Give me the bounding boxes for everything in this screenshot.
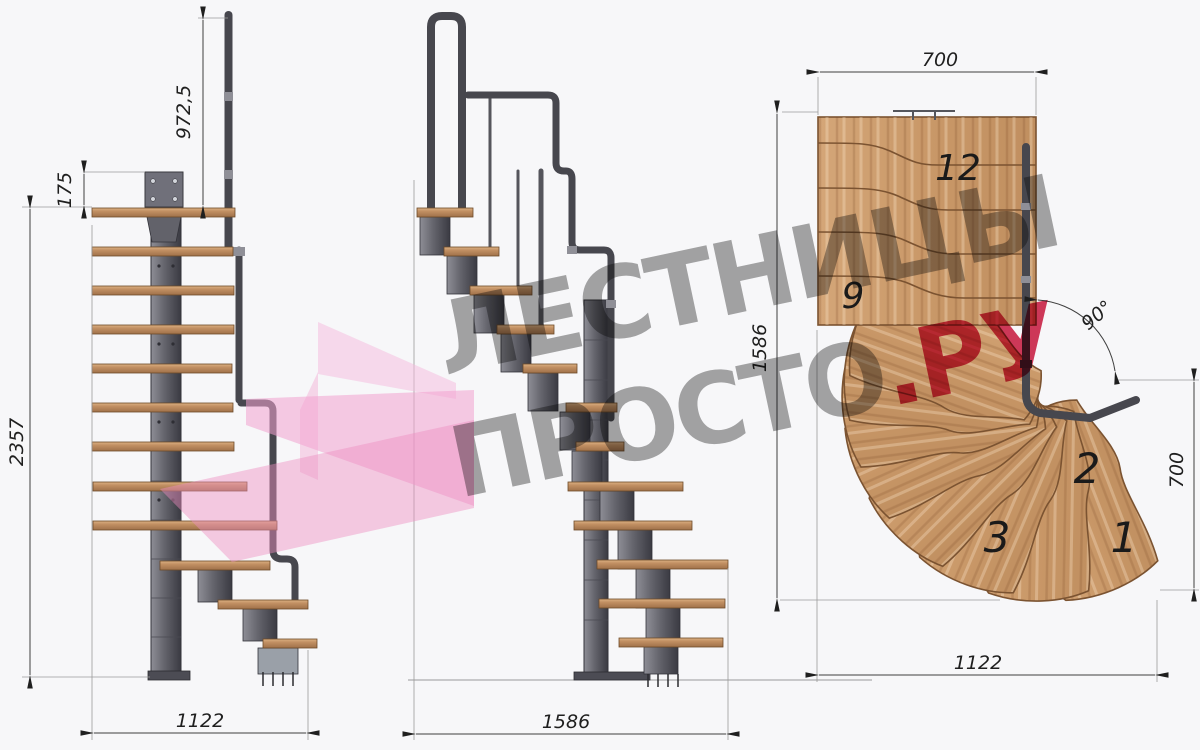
dim-label-side-width: 1586 [542,711,590,733]
front-base-foot [258,648,298,674]
front-elevation-view: 972,5 175 2357 1122 [6,15,317,740]
front-base-plate [148,671,190,680]
front-winder-block [243,609,277,641]
step-label-2: 2 [1074,444,1101,493]
step-label-1: 1 [1111,513,1138,562]
wall-mount-plate [145,172,183,207]
step-label-3: 3 [984,513,1011,562]
rail-sleeve [224,170,233,179]
dim-label-plan-bottom-width: 1122 [954,652,1002,674]
staircase-drawing-canvas: 972,5 175 2357 1122 [0,0,1200,750]
dim-label-plan-top-width: 700 [922,49,958,71]
rail-sleeve [233,247,245,256]
side-base-plate [574,672,650,680]
front-winder-block [198,570,232,602]
dim-label-plate-offset: 175 [54,172,76,208]
dim-label-rail-height: 972,5 [173,85,195,139]
rail-sleeve [224,92,233,101]
drawing-svg: 972,5 175 2357 1122 [0,0,1200,750]
dim-label-turn-angle: 90° [1077,296,1117,335]
dim-label-plan-right-depth: 700 [1166,452,1188,488]
dim-label-front-width: 1122 [176,710,224,732]
dim-label-total-height: 2357 [6,418,28,466]
